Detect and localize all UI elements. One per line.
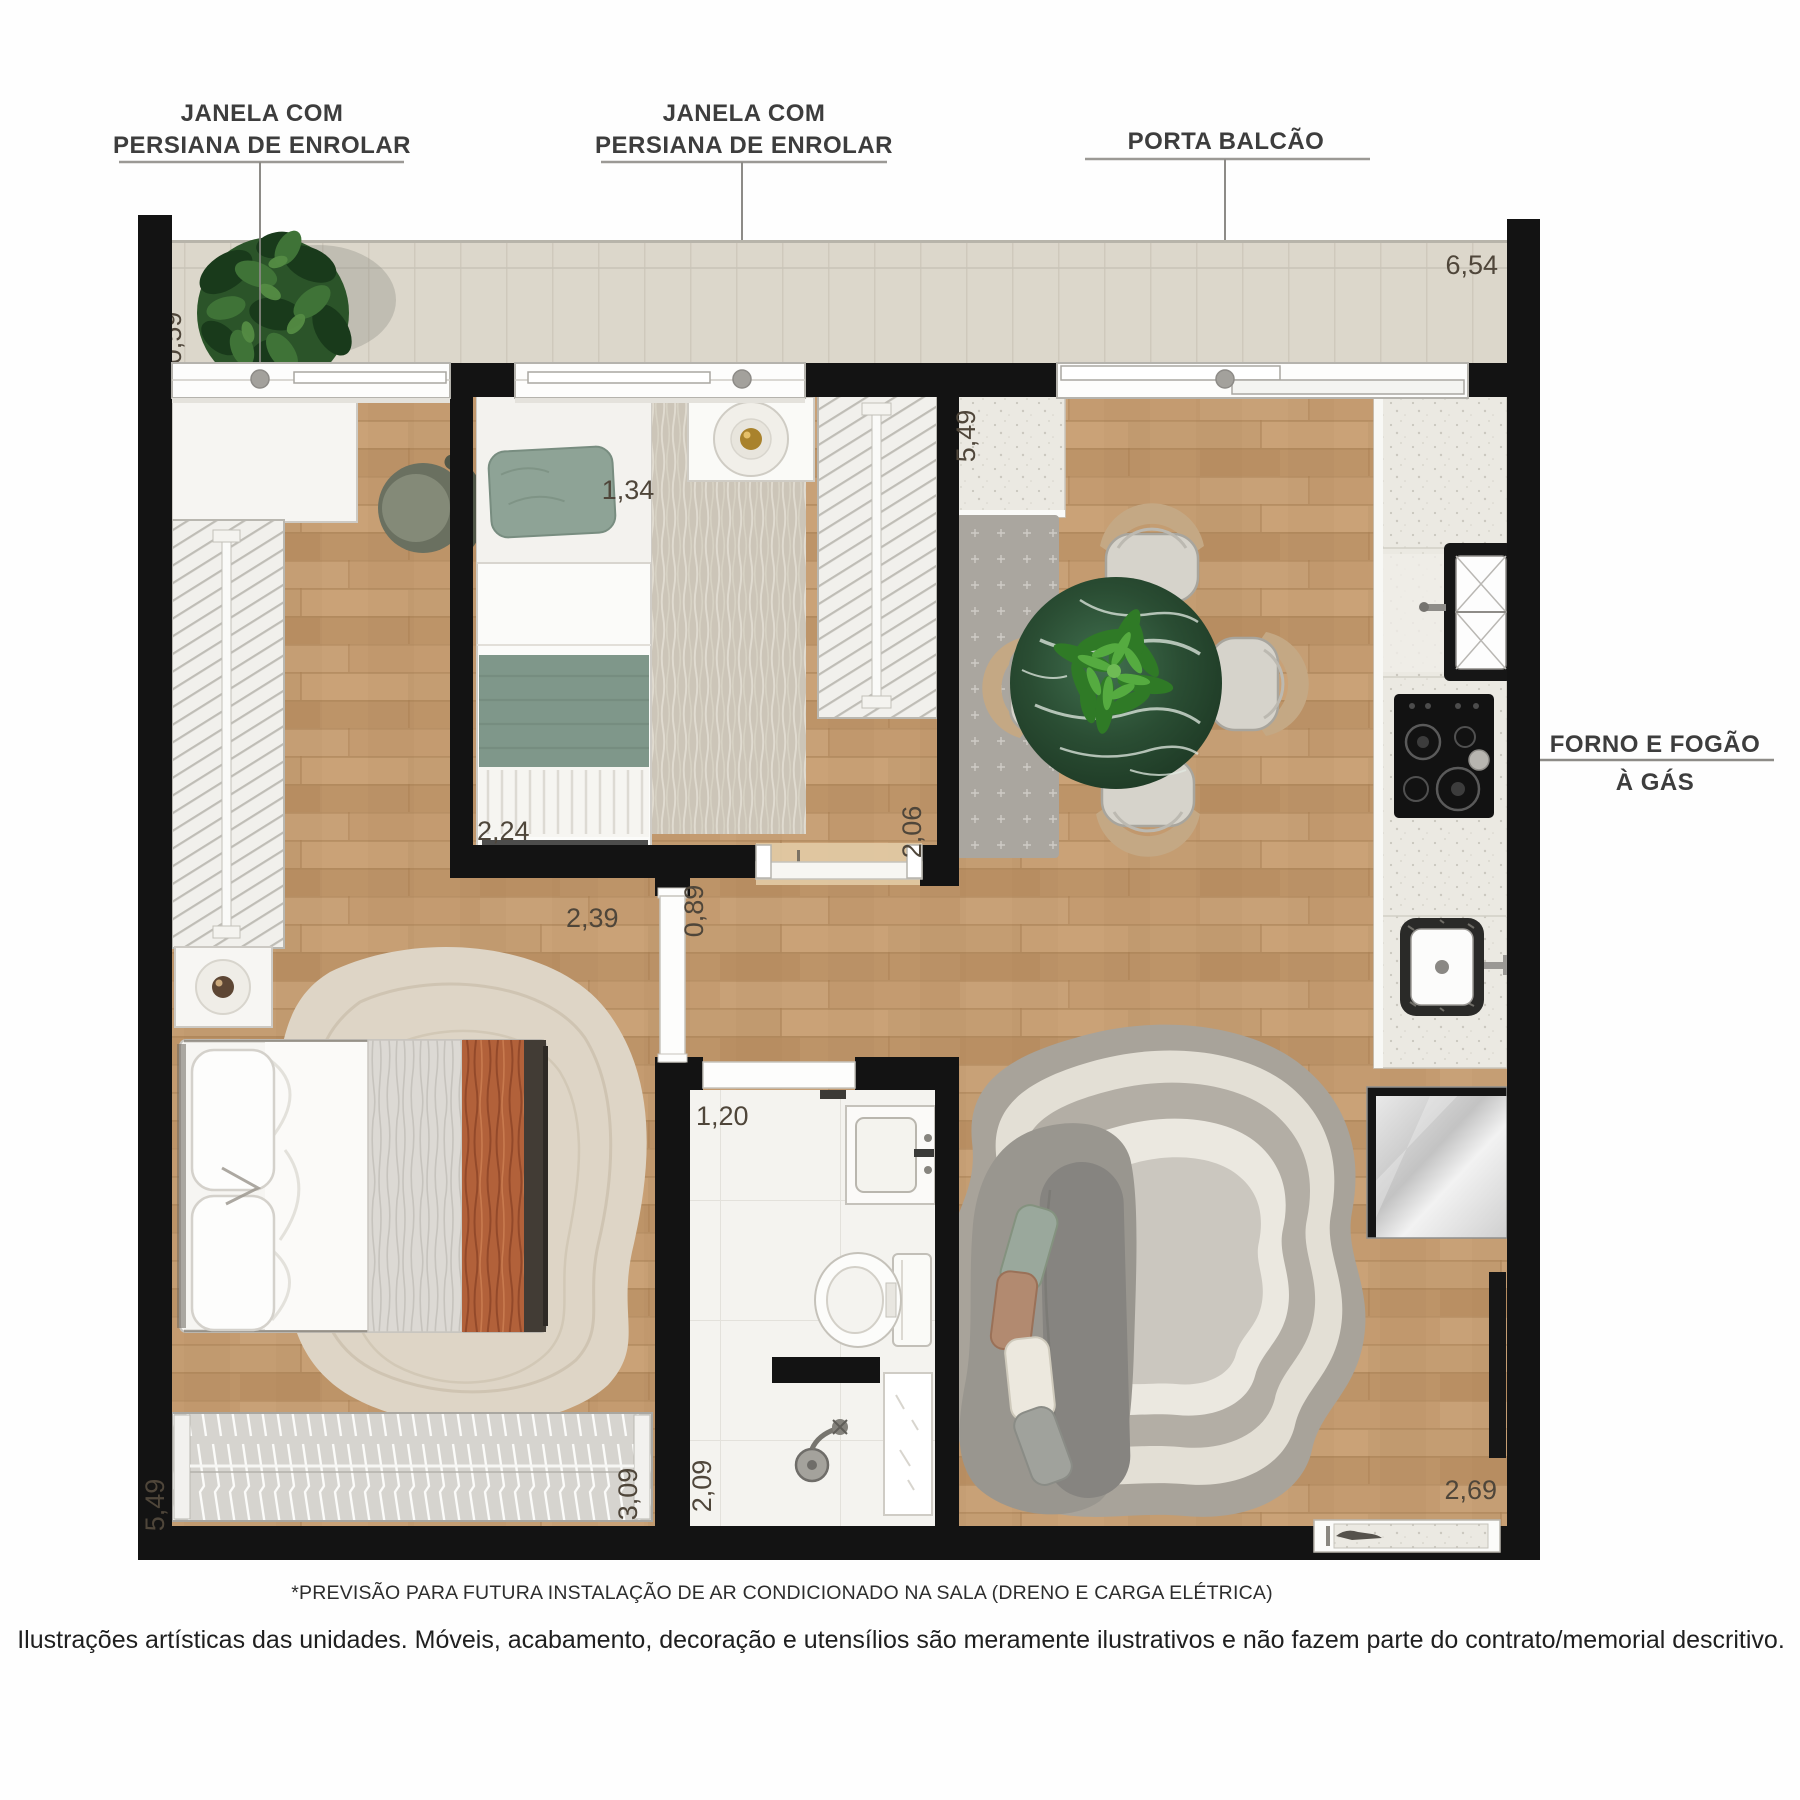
svg-text:Ilustrações artísticas das uni: Ilustrações artísticas das unidades. Móv… bbox=[17, 1626, 1785, 1654]
svg-text:2,24: 2,24 bbox=[477, 816, 530, 846]
svg-text:PORTA BALCÃO: PORTA BALCÃO bbox=[1128, 127, 1325, 155]
svg-text:1,34: 1,34 bbox=[602, 475, 655, 505]
svg-text:2,06: 2,06 bbox=[897, 806, 927, 859]
svg-text:*PREVISÃO PARA FUTURA INSTALAÇ: *PREVISÃO PARA FUTURA INSTALAÇÃO DE AR C… bbox=[291, 1580, 1273, 1604]
svg-text:2,09: 2,09 bbox=[687, 1460, 717, 1513]
svg-text:5,49: 5,49 bbox=[140, 1479, 170, 1532]
svg-text:À GÁS: À GÁS bbox=[1616, 768, 1695, 796]
svg-text:2,39: 2,39 bbox=[566, 903, 619, 933]
svg-text:PERSIANA DE ENROLAR: PERSIANA DE ENROLAR bbox=[113, 132, 411, 159]
svg-text:0,89: 0,89 bbox=[679, 885, 709, 938]
svg-text:3,09: 3,09 bbox=[613, 1468, 643, 1521]
svg-text:5,49: 5,49 bbox=[951, 410, 981, 463]
svg-text:1,20: 1,20 bbox=[696, 1101, 749, 1131]
svg-text:JANELA COM: JANELA COM bbox=[663, 100, 826, 127]
svg-text:2,69: 2,69 bbox=[1444, 1475, 1497, 1505]
svg-text:FORNO E FOGÃO: FORNO E FOGÃO bbox=[1550, 730, 1761, 758]
svg-text:6,54: 6,54 bbox=[1445, 250, 1498, 280]
svg-text:PERSIANA DE ENROLAR: PERSIANA DE ENROLAR bbox=[595, 132, 893, 159]
svg-text:JANELA COM: JANELA COM bbox=[181, 100, 344, 127]
